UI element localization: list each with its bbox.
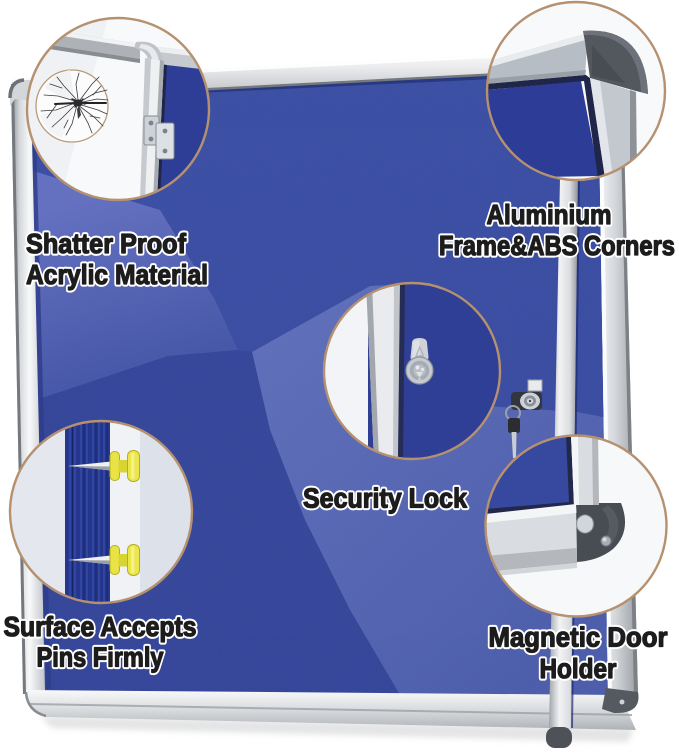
svg-text:Magnetic Door: Magnetic Door — [489, 622, 668, 653]
svg-text:Frame&ABS Corners: Frame&ABS Corners — [439, 230, 675, 261]
svg-text:Acrylic Material: Acrylic Material — [26, 259, 208, 290]
svg-text:Security Lock: Security Lock — [303, 483, 467, 514]
svg-text:Surface Accepts: Surface Accepts — [4, 611, 197, 642]
svg-text:Shatter Proof: Shatter Proof — [26, 228, 187, 259]
svg-text:Pins Firmly: Pins Firmly — [37, 642, 164, 673]
svg-text:Aluminium: Aluminium — [487, 199, 612, 230]
svg-text:Holder: Holder — [540, 653, 617, 684]
